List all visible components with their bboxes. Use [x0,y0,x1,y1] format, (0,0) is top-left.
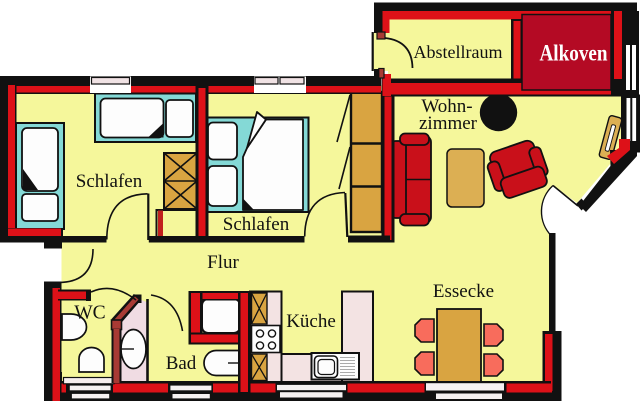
svg-text:Abstellraum: Abstellraum [414,42,503,62]
svg-text:Alkoven: Alkoven [540,41,608,66]
svg-text:Küche: Küche [286,311,336,332]
svg-text:Essecke: Essecke [433,281,494,302]
svg-text:Bad: Bad [166,353,197,374]
svg-text:WC: WC [74,303,105,324]
svg-text:Schlafen: Schlafen [223,214,290,235]
svg-text:Flur: Flur [207,252,239,273]
svg-text:zimmer: zimmer [419,113,478,134]
svg-text:Schlafen: Schlafen [76,171,143,192]
